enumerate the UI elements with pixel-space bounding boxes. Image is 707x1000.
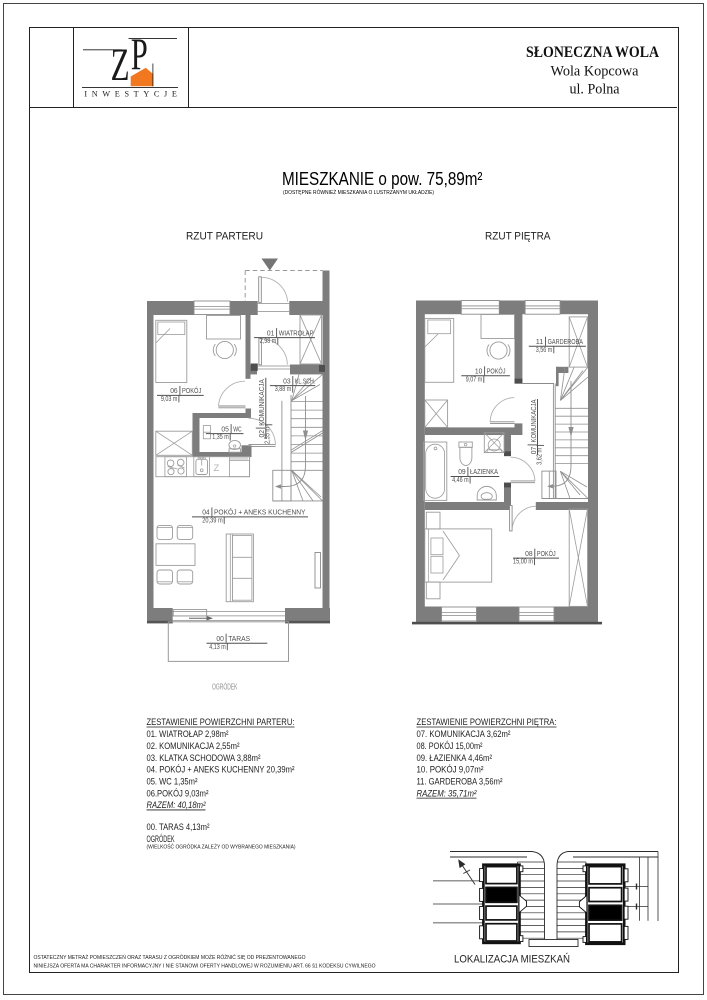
svg-text:OGRÓDEK: OGRÓDEK <box>147 834 175 844</box>
svg-text:POKÓJ: POKÓJ <box>182 386 202 395</box>
svg-text:ul. Polna: ul. Polna <box>570 82 620 98</box>
svg-text:09. ŁAZIENKA 4,46m²: 09. ŁAZIENKA 4,46m² <box>417 753 493 763</box>
svg-text:ŁAZIENKA: ŁAZIENKA <box>470 467 498 476</box>
svg-text:ZESTAWIENIE POWIERZCHNI PIĘTRA: ZESTAWIENIE POWIERZCHNI PIĘTRA: <box>417 717 557 727</box>
svg-text:4,13 m: 4,13 m <box>209 642 226 651</box>
svg-text:9,07 m: 9,07 m <box>466 374 483 383</box>
svg-text:POKÓJ: POKÓJ <box>537 549 556 558</box>
svg-text:06.POKÓJ 9,03m²: 06.POKÓJ 9,03m² <box>147 788 209 798</box>
svg-text:00. TARAS 4,13m²: 00. TARAS 4,13m² <box>147 822 210 832</box>
svg-text:01. WIATROŁAP 2,98m²: 01. WIATROŁAP 2,98m² <box>147 729 229 739</box>
svg-text:GARDEROBA: GARDEROBA <box>548 337 584 346</box>
svg-text:3,88 m: 3,88 m <box>275 384 292 393</box>
svg-text:2,98 m: 2,98 m <box>260 336 277 345</box>
svg-text:02. KOMUNIKACJA 2,55m²: 02. KOMUNIKACJA 2,55m² <box>147 741 240 751</box>
svg-text:9,03 m: 9,03 m <box>161 394 178 403</box>
svg-text:LOKALIZACJA MIESZKAŃ: LOKALIZACJA MIESZKAŃ <box>454 953 570 966</box>
svg-text:3,56 m: 3,56 m <box>536 345 553 354</box>
svg-text:OGRÓDEK: OGRÓDEK <box>212 683 238 692</box>
svg-text:KOMUNIKACJA: KOMUNIKACJA <box>529 399 538 442</box>
svg-text:MIESZKANIE o pow. 75,89m²: MIESZKANIE o pow. 75,89m² <box>282 168 483 189</box>
svg-text:07. KOMUNIKACJA 3,62m²: 07. KOMUNIKACJA 3,62m² <box>417 729 511 739</box>
svg-text:2,55 m: 2,55 m <box>263 427 272 444</box>
svg-text:4,46 m: 4,46 m <box>452 475 469 484</box>
svg-text:POKÓJ: POKÓJ <box>487 367 506 376</box>
svg-text:08. POKÓJ 15,00m²: 08. POKÓJ 15,00m² <box>417 741 483 751</box>
svg-text:WIATROŁAP: WIATROŁAP <box>279 328 314 337</box>
svg-text:RAZEM: 40,18m²: RAZEM: 40,18m² <box>147 800 207 810</box>
svg-text:3,62 m: 3,62 m <box>534 448 543 465</box>
svg-text:POKÓJ + ANEKS KUCHENNY: POKÓJ + ANEKS KUCHENNY <box>214 508 306 517</box>
svg-text:NINIEJSZA OFERTA MA CHARAKTER: NINIEJSZA OFERTA MA CHARAKTER INFORMACYJ… <box>34 963 376 969</box>
svg-text:Z: Z <box>111 38 130 90</box>
svg-text:RZUT PARTERU: RZUT PARTERU <box>186 230 263 242</box>
svg-text:(DOSTĘPNE RÓWNIEŻ MIESZKANIA O: (DOSTĘPNE RÓWNIEŻ MIESZKANIA O LUSTRZANY… <box>283 189 434 196</box>
svg-text:(WIELKOŚĆ OGRÓDKA ZALEŻY OD WY: (WIELKOŚĆ OGRÓDKA ZALEŻY OD WYBRANEGO MI… <box>147 843 296 851</box>
svg-text:KOMUNIKACJA: KOMUNIKACJA <box>257 379 266 426</box>
svg-text:KL.SCH.: KL.SCH. <box>295 376 315 385</box>
svg-text:05. WC 1,35m²: 05. WC 1,35m² <box>147 776 198 786</box>
svg-text:INWESTYCJE: INWESTYCJE <box>84 90 176 99</box>
svg-text:04. POKÓJ + ANEKS KUCHENNY 20,: 04. POKÓJ + ANEKS KUCHENNY 20,39m² <box>147 765 295 775</box>
svg-text:10. POKÓJ 9,07m²: 10. POKÓJ 9,07m² <box>417 765 484 775</box>
svg-text:WC: WC <box>233 424 242 433</box>
svg-text:20,39 m: 20,39 m <box>202 516 223 525</box>
svg-text:ZESTAWIENIE POWIERZCHNI PARTER: ZESTAWIENIE POWIERZCHNI PARTERU: <box>147 717 295 727</box>
svg-text:OSTATECZNY METRAŻ POMIESZCZEŃ: OSTATECZNY METRAŻ POMIESZCZEŃ ORAZ TARAS… <box>34 954 306 961</box>
svg-text:15,00 m: 15,00 m <box>513 557 533 566</box>
svg-text:RAZEM: 35,71m²: RAZEM: 35,71m² <box>417 788 478 798</box>
svg-text:TARAS: TARAS <box>228 634 250 643</box>
svg-text:RZUT PIĘTRA: RZUT PIĘTRA <box>485 230 551 242</box>
svg-text:Wola Kopcowa: Wola Kopcowa <box>551 64 639 80</box>
svg-text:11. GARDEROBA 3,56m²: 11. GARDEROBA 3,56m² <box>417 776 503 786</box>
svg-text:Z: Z <box>214 463 220 474</box>
svg-text:03. KLATKA SCHODOWA 3,88m²: 03. KLATKA SCHODOWA 3,88m² <box>147 753 261 763</box>
svg-text:1,35 m: 1,35 m <box>212 432 229 441</box>
svg-text:SŁONECZNA WOLA: SŁONECZNA WOLA <box>526 44 659 61</box>
